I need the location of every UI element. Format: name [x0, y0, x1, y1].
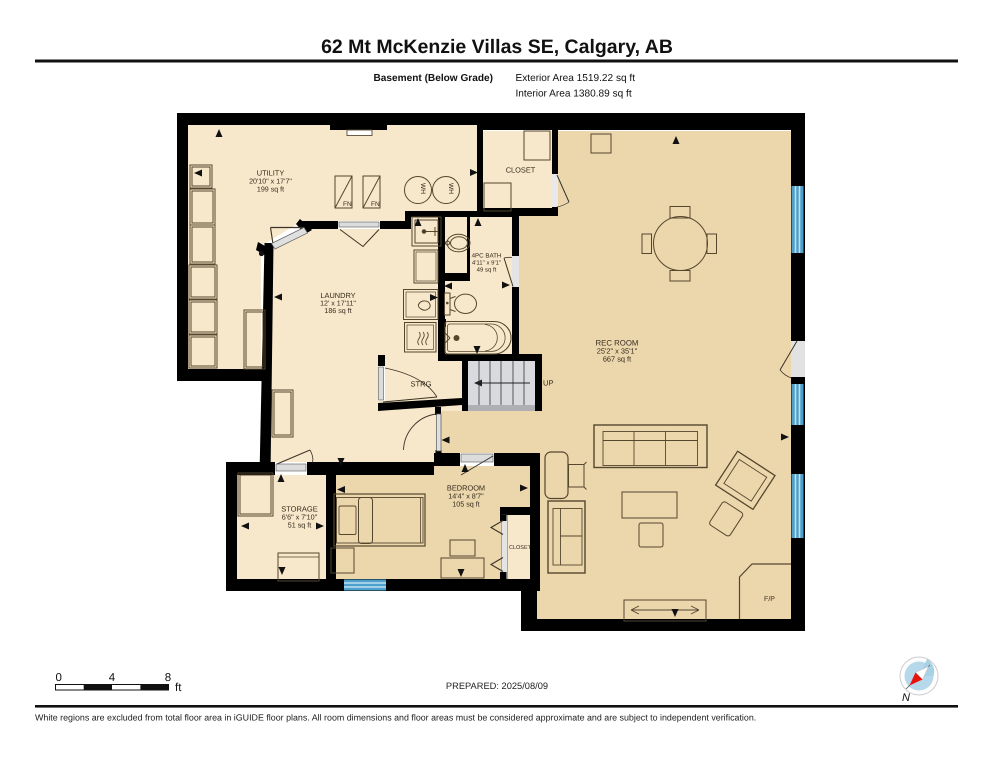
svg-text:N: N [902, 692, 910, 704]
svg-text:4: 4 [109, 672, 116, 684]
svg-text:Interior Area 1380.89 sq ft: Interior Area 1380.89 sq ft [516, 89, 632, 100]
svg-text:62 Mt McKenzie Villas SE, Calg: 62 Mt McKenzie Villas SE, Calgary, AB [321, 36, 673, 58]
svg-text:49 sq ft: 49 sq ft [477, 267, 497, 274]
svg-text:WH: WH [447, 183, 454, 194]
svg-text:PREPARED: 2025/08/09: PREPARED: 2025/08/09 [446, 681, 548, 691]
svg-text:20'10" x 17'7": 20'10" x 17'7" [249, 178, 292, 186]
svg-text:667 sq ft: 667 sq ft [603, 355, 631, 364]
svg-text:F/P: F/P [764, 595, 775, 603]
svg-text:Basement (Below Grade): Basement (Below Grade) [374, 73, 493, 84]
svg-text:186 sq ft: 186 sq ft [324, 307, 351, 315]
svg-text:STRG: STRG [410, 380, 431, 389]
svg-text:105 sq ft: 105 sq ft [452, 500, 480, 509]
svg-text:UP: UP [543, 379, 554, 388]
svg-text:FN: FN [343, 201, 352, 208]
svg-text:CLOSET: CLOSET [509, 545, 532, 551]
svg-text:UTILITY: UTILITY [257, 169, 285, 178]
svg-text:ft: ft [175, 682, 182, 694]
svg-text:4PC BATH: 4PC BATH [472, 253, 502, 260]
svg-text:8: 8 [165, 672, 171, 684]
svg-text:51 sq ft: 51 sq ft [288, 521, 312, 530]
svg-text:4'11" x 9'1": 4'11" x 9'1" [472, 260, 501, 267]
svg-text:CLOSET: CLOSET [506, 166, 536, 175]
svg-text:FN: FN [371, 201, 380, 208]
svg-text:0: 0 [56, 672, 62, 684]
svg-text:WH: WH [419, 183, 426, 194]
svg-text:Exterior Area 1519.22 sq ft: Exterior Area 1519.22 sq ft [516, 73, 636, 84]
svg-text:199 sq ft: 199 sq ft [257, 186, 284, 194]
svg-text:White regions are excluded fro: White regions are excluded from total fl… [35, 713, 756, 723]
